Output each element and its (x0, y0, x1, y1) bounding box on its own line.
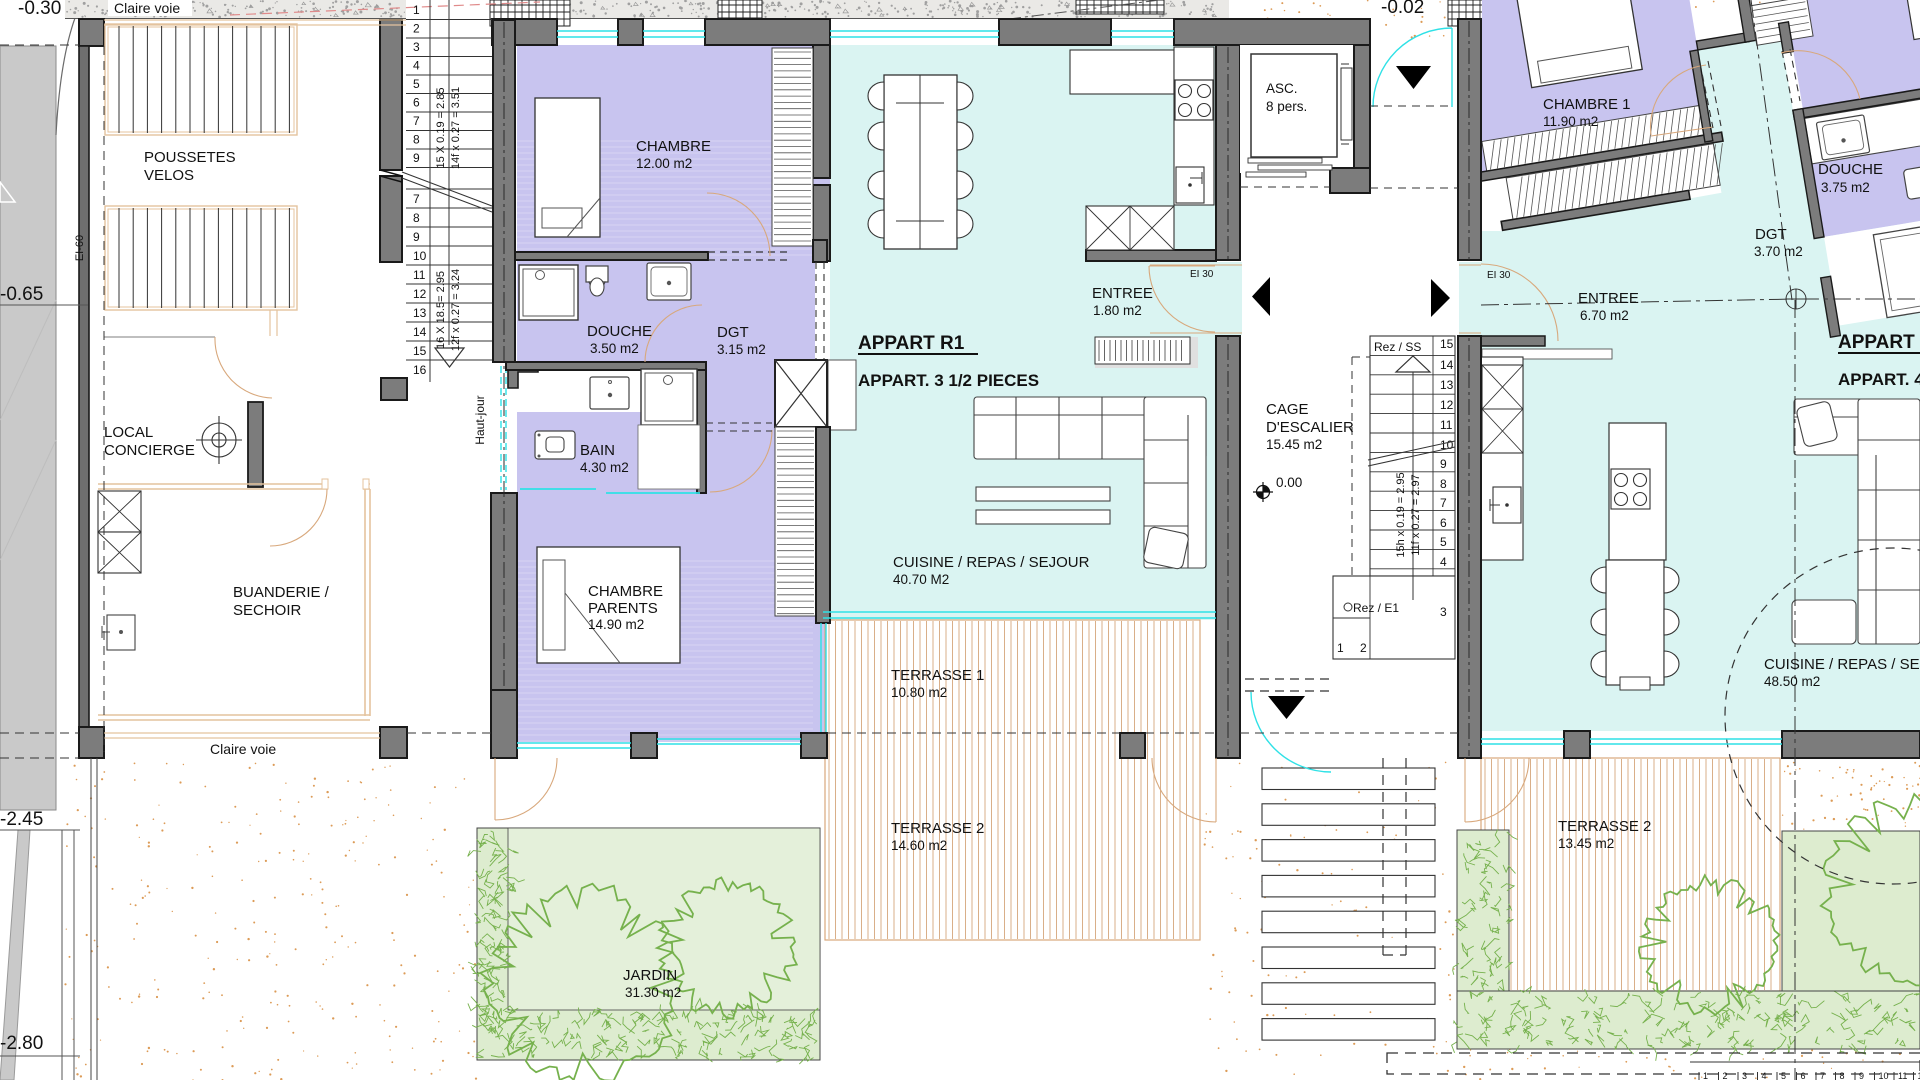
svg-text:4: 4 (413, 59, 420, 73)
svg-text:DGT: DGT (717, 324, 749, 341)
svg-text:CONCIERGE: CONCIERGE (104, 442, 195, 459)
svg-text:7: 7 (1820, 1071, 1825, 1080)
svg-text:11: 11 (413, 268, 426, 282)
svg-text:0.00: 0.00 (1276, 475, 1302, 490)
svg-text:14f x 0.27 = 3.51: 14f x 0.27 = 3.51 (450, 87, 462, 169)
svg-text:8: 8 (1840, 1071, 1845, 1080)
svg-text:3.70 m2: 3.70 m2 (1754, 244, 1803, 259)
svg-text:11: 11 (1440, 418, 1453, 432)
svg-text:EI-60: EI-60 (74, 235, 86, 261)
svg-text:APPART R1: APPART R1 (858, 333, 965, 354)
svg-text:14: 14 (413, 325, 427, 339)
svg-text:15h x 0.19 = 2.95: 15h x 0.19 = 2.95 (1395, 472, 1407, 557)
svg-text:3.50 m2: 3.50 m2 (590, 341, 639, 356)
svg-text:CAGE: CAGE (1266, 401, 1309, 418)
svg-text:3: 3 (1440, 605, 1447, 619)
svg-text:9: 9 (413, 151, 420, 165)
svg-text:8: 8 (1440, 477, 1447, 491)
svg-text:DOUCHE: DOUCHE (587, 323, 652, 340)
svg-text:12: 12 (1440, 398, 1454, 412)
svg-text:9: 9 (1859, 1071, 1864, 1080)
svg-text:11f x 0.27 = 2.97: 11f x 0.27 = 2.97 (1410, 474, 1422, 555)
svg-text:3: 3 (413, 40, 420, 54)
svg-text:LOCAL: LOCAL (104, 424, 153, 441)
svg-text:2: 2 (1360, 641, 1367, 655)
svg-text:CHAMBRE: CHAMBRE (588, 583, 663, 600)
svg-text:7: 7 (413, 192, 420, 206)
svg-text:7: 7 (413, 114, 420, 128)
svg-text:CUISINE / REPAS / SEJ: CUISINE / REPAS / SEJ (1764, 656, 1920, 673)
svg-text:Haut-jour: Haut-jour (473, 395, 487, 444)
svg-text:13: 13 (413, 306, 427, 320)
svg-text:48.50 m2: 48.50 m2 (1764, 674, 1820, 689)
svg-text:9: 9 (1440, 457, 1447, 471)
svg-text:15: 15 (1440, 337, 1454, 351)
svg-text:PARENTS: PARENTS (588, 600, 658, 617)
svg-text:-0.65: -0.65 (0, 284, 43, 305)
svg-text:13.45 m2: 13.45 m2 (1558, 836, 1614, 851)
svg-text:6: 6 (1801, 1071, 1806, 1080)
svg-text:JARDIN: JARDIN (623, 967, 677, 984)
svg-text:13: 13 (1440, 378, 1454, 392)
svg-text:31.30 m2: 31.30 m2 (625, 985, 681, 1000)
svg-text:CHAMBRE: CHAMBRE (636, 138, 711, 155)
svg-text:POUSSETES: POUSSETES (144, 149, 236, 166)
svg-text:BUANDERIE /: BUANDERIE / (233, 584, 330, 601)
svg-text:2: 2 (1723, 1071, 1728, 1080)
svg-text:VELOS: VELOS (144, 167, 194, 184)
svg-text:1: 1 (1337, 641, 1344, 655)
svg-text:15.45 m2: 15.45 m2 (1266, 437, 1322, 452)
svg-text:APPART R: APPART R (1838, 332, 1920, 353)
svg-text:10.80 m2: 10.80 m2 (891, 685, 947, 700)
svg-text:14.90 m2: 14.90 m2 (588, 617, 644, 632)
svg-text:4.30 m2: 4.30 m2 (580, 460, 629, 475)
svg-text:10: 10 (413, 249, 427, 263)
svg-text:TERRASSE 2: TERRASSE 2 (1558, 818, 1651, 835)
svg-text:Claire voie: Claire voie (210, 741, 276, 757)
svg-text:4: 4 (1762, 1071, 1767, 1080)
svg-text:D'ESCALIER: D'ESCALIER (1266, 419, 1354, 436)
svg-text:6.70 m2: 6.70 m2 (1580, 308, 1629, 323)
svg-text:15: 15 (413, 344, 427, 358)
svg-text:9: 9 (413, 230, 420, 244)
svg-text:10: 10 (1879, 1071, 1889, 1080)
svg-text:16 X 18.5= 2.95: 16 X 18.5= 2.95 (435, 271, 447, 349)
svg-text:Rez / E1: Rez / E1 (1353, 601, 1399, 615)
svg-text:DOUCHE: DOUCHE (1818, 161, 1883, 178)
svg-text:-2.45: -2.45 (0, 809, 43, 830)
svg-text:1: 1 (1703, 1071, 1708, 1080)
svg-text:12.00 m2: 12.00 m2 (636, 156, 692, 171)
svg-text:ASC.: ASC. (1266, 81, 1298, 96)
svg-text:15 X 0.19 = 2.85: 15 X 0.19 = 2.85 (435, 87, 447, 168)
svg-text:8: 8 (413, 133, 420, 147)
svg-text:11.90 m2: 11.90 m2 (1543, 114, 1598, 129)
svg-text:1: 1 (413, 3, 420, 17)
svg-text:8: 8 (413, 211, 420, 225)
svg-text:3.75 m2: 3.75 m2 (1821, 180, 1870, 195)
svg-text:SECHOIR: SECHOIR (233, 602, 302, 619)
svg-text:3: 3 (1742, 1071, 1747, 1080)
svg-text:7: 7 (1440, 496, 1447, 510)
svg-text:6: 6 (1440, 516, 1447, 530)
svg-text:40.70 M2: 40.70 M2 (893, 572, 949, 587)
svg-text:DGT: DGT (1755, 226, 1787, 243)
svg-text:EI 30: EI 30 (1190, 269, 1214, 280)
svg-text:TERRASSE 2: TERRASSE 2 (891, 820, 984, 837)
svg-text:1.80 m2: 1.80 m2 (1093, 303, 1142, 318)
svg-text:8 pers.: 8 pers. (1266, 99, 1307, 114)
svg-text:-2.80: -2.80 (0, 1033, 43, 1054)
svg-text:14: 14 (1440, 358, 1454, 372)
svg-text:EI 30: EI 30 (1487, 270, 1511, 281)
svg-text:12: 12 (413, 287, 427, 301)
svg-text:2: 2 (413, 22, 420, 36)
svg-text:4: 4 (1440, 555, 1447, 569)
svg-text:-0.02: -0.02 (1381, 0, 1424, 18)
svg-text:5: 5 (1440, 535, 1447, 549)
svg-text:5: 5 (413, 77, 420, 91)
svg-text:ENTREE: ENTREE (1092, 285, 1153, 302)
svg-text:-0.30: -0.30 (18, 0, 61, 19)
svg-text:Claire voie: Claire voie (114, 0, 180, 16)
svg-text:5: 5 (1781, 1071, 1786, 1080)
svg-text:BAIN: BAIN (580, 442, 615, 459)
svg-text:APPART. 3 1/2 PIECES: APPART. 3 1/2 PIECES (858, 371, 1039, 390)
svg-text:Rez / SS: Rez / SS (1374, 340, 1421, 354)
svg-text:12f x 0.27 = 3.24: 12f x 0.27 = 3.24 (450, 269, 462, 351)
svg-text:APPART. 4: APPART. 4 (1838, 370, 1920, 389)
svg-text:CHAMBRE 1: CHAMBRE 1 (1543, 96, 1631, 113)
svg-text:16: 16 (413, 363, 427, 377)
svg-text:14.60 m2: 14.60 m2 (891, 838, 947, 853)
svg-text:ENTREE: ENTREE (1578, 290, 1639, 307)
svg-text:TERRASSE 1: TERRASSE 1 (891, 667, 984, 684)
svg-text:6: 6 (413, 96, 420, 110)
svg-text:11: 11 (1898, 1071, 1907, 1080)
svg-text:3.15 m2: 3.15 m2 (717, 342, 766, 357)
svg-text:CUISINE / REPAS / SEJOUR: CUISINE / REPAS / SEJOUR (893, 554, 1090, 571)
